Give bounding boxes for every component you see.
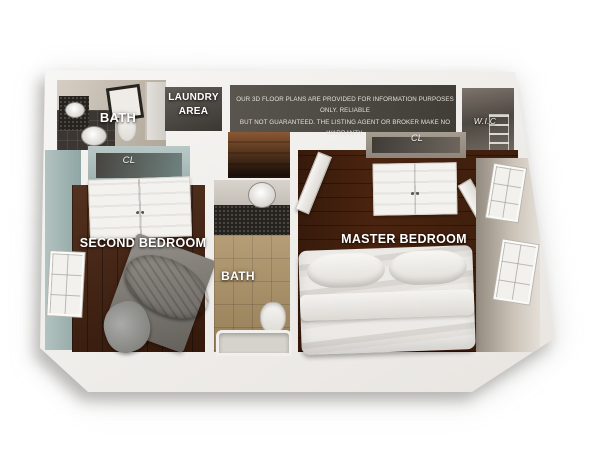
room-bath-center [214,180,290,352]
closet-master-double-doors [373,162,458,215]
label-laundry-area: LAUNDRY AREA [165,91,222,118]
bath-center-bathtub [216,330,292,356]
bed-blanket-fold [300,289,475,321]
label-master-bedroom: MASTER BEDROOM [334,232,474,246]
label-bath-center: BATH [200,269,276,283]
label-walk-in-closet: W.I.C [462,116,508,126]
bath-upper-basin [81,126,107,146]
label-second-bedroom: SECOND BEDROOM [57,236,229,250]
disclaimer-line1: OUR 3D FLOOR PLANS ARE PROVIDED FOR INFO… [236,96,454,114]
label-closet-master: CL [389,133,445,143]
label-bath-upper: BATH [78,110,158,125]
door-knobs [135,211,145,214]
label-laundry-line2: AREA [179,106,209,117]
label-laundry-line1: LAUNDRY [168,92,219,103]
floor-plan-shadow: BATH LAUNDRY AREA OUR 3D FLOOR PLANS ARE… [38,66,556,392]
floor-plan-image: BATH LAUNDRY AREA OUR 3D FLOOR PLANS ARE… [0,0,600,450]
label-closet-second: CL [101,155,157,166]
floor-plan: BATH LAUNDRY AREA OUR 3D FLOOR PLANS ARE… [38,66,556,392]
door-knobs [410,191,420,194]
bath-center-sink [248,182,276,208]
bath-center-granite-vanity [214,205,290,235]
pillow [306,252,385,289]
second-bedroom-window [47,251,84,317]
master-bed [298,245,476,355]
pillow [388,249,467,286]
closet-second-double-doors [88,176,192,240]
